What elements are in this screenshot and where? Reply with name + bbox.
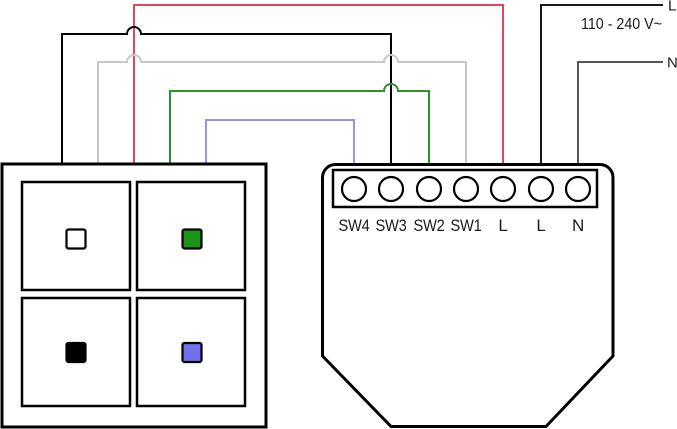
terminal-hole-sw1 <box>454 177 478 201</box>
terminal-hole-sw3 <box>379 177 403 201</box>
wire-black <box>62 27 391 165</box>
wire-gray <box>98 55 466 165</box>
terminal-label-sw1: SW1 <box>451 216 482 235</box>
supply-line-n <box>578 62 663 165</box>
wire-blue <box>206 120 354 165</box>
mains-voltage-label: 110 - 240 V~ <box>581 16 662 33</box>
terminal-label-l1: L <box>498 216 507 235</box>
terminal-label-sw3: SW3 <box>376 216 407 235</box>
terminal-hole-n <box>566 177 590 201</box>
switch-button-blue <box>183 343 202 362</box>
terminal-label-n: N <box>572 216 584 235</box>
switch-button-white <box>67 230 86 249</box>
terminal-hole-l1 <box>491 177 515 201</box>
terminal-hole-l2 <box>529 177 553 201</box>
diagram-canvas: SW4 SW3 SW2 SW1 L L N L 110 - 240 V~ N <box>0 0 677 429</box>
terminal-label-sw4: SW4 <box>339 216 370 235</box>
mains-neutral-label: N <box>667 55 677 72</box>
wire-red <box>134 5 503 165</box>
terminal-label-l2: L <box>536 216 545 235</box>
switch-button-green <box>183 230 202 249</box>
switch-button-black <box>67 343 86 362</box>
mains-line-label: L <box>668 0 676 15</box>
terminal-label-sw2: SW2 <box>414 216 445 235</box>
relay-module: SW4 SW3 SW2 SW1 L L N <box>323 165 614 427</box>
wiring-diagram: SW4 SW3 SW2 SW1 L L N L 110 - 240 V~ N <box>0 0 677 429</box>
terminal-hole-sw4 <box>342 177 366 201</box>
wall-switch-panel <box>2 164 266 427</box>
terminal-hole-sw2 <box>417 177 441 201</box>
